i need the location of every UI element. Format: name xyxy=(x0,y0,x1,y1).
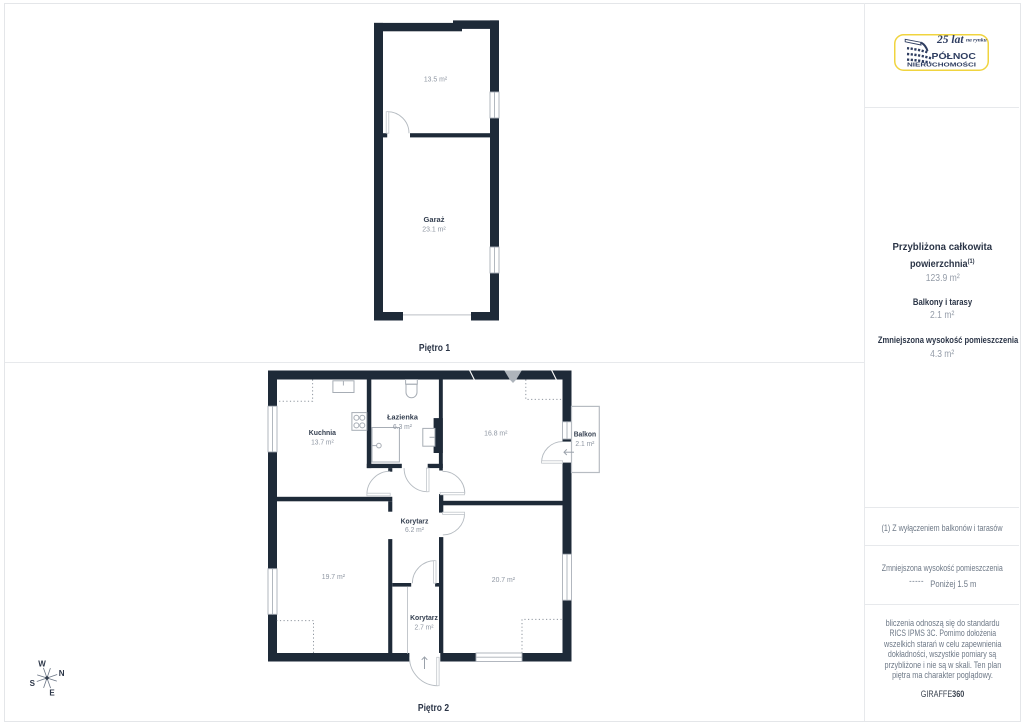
svg-text:Piętro 1: Piętro 1 xyxy=(419,342,450,354)
svg-text:PÓŁNOC: PÓŁNOC xyxy=(932,50,976,61)
svg-text:13.7 m²: 13.7 m² xyxy=(311,438,334,447)
svg-text:2.1 m²: 2.1 m² xyxy=(575,439,594,448)
svg-text:Łazienka: Łazienka xyxy=(387,412,419,421)
svg-text:23.1 m²: 23.1 m² xyxy=(422,224,446,233)
svg-text:6.2 m²: 6.2 m² xyxy=(405,525,424,534)
svg-text:20.7 m²: 20.7 m² xyxy=(492,575,516,584)
svg-text:Garaż: Garaż xyxy=(424,215,445,224)
svg-text:19.7 m²: 19.7 m² xyxy=(322,572,346,581)
svg-text:E: E xyxy=(49,689,55,698)
svg-text:S: S xyxy=(30,679,36,688)
svg-text:16.8 m²: 16.8 m² xyxy=(484,429,508,438)
svg-text:Piętro 2: Piętro 2 xyxy=(418,702,449,714)
svg-text:13.5 m²: 13.5 m² xyxy=(424,75,448,84)
svg-text:N: N xyxy=(59,669,65,678)
svg-text:na rynku: na rynku xyxy=(966,38,987,44)
svg-text:6.3 m²: 6.3 m² xyxy=(393,422,412,431)
svg-text:NIERUCHOMOŚCI: NIERUCHOMOŚCI xyxy=(907,61,977,68)
svg-text:25 lat: 25 lat xyxy=(936,34,964,46)
svg-text:2.7 m²: 2.7 m² xyxy=(415,622,434,631)
svg-text:W: W xyxy=(38,659,46,668)
svg-text:Balkon: Balkon xyxy=(574,429,597,438)
svg-text:Korytarz: Korytarz xyxy=(410,613,438,622)
svg-text:Kuchnia: Kuchnia xyxy=(309,428,337,437)
svg-text:Korytarz: Korytarz xyxy=(401,517,429,526)
